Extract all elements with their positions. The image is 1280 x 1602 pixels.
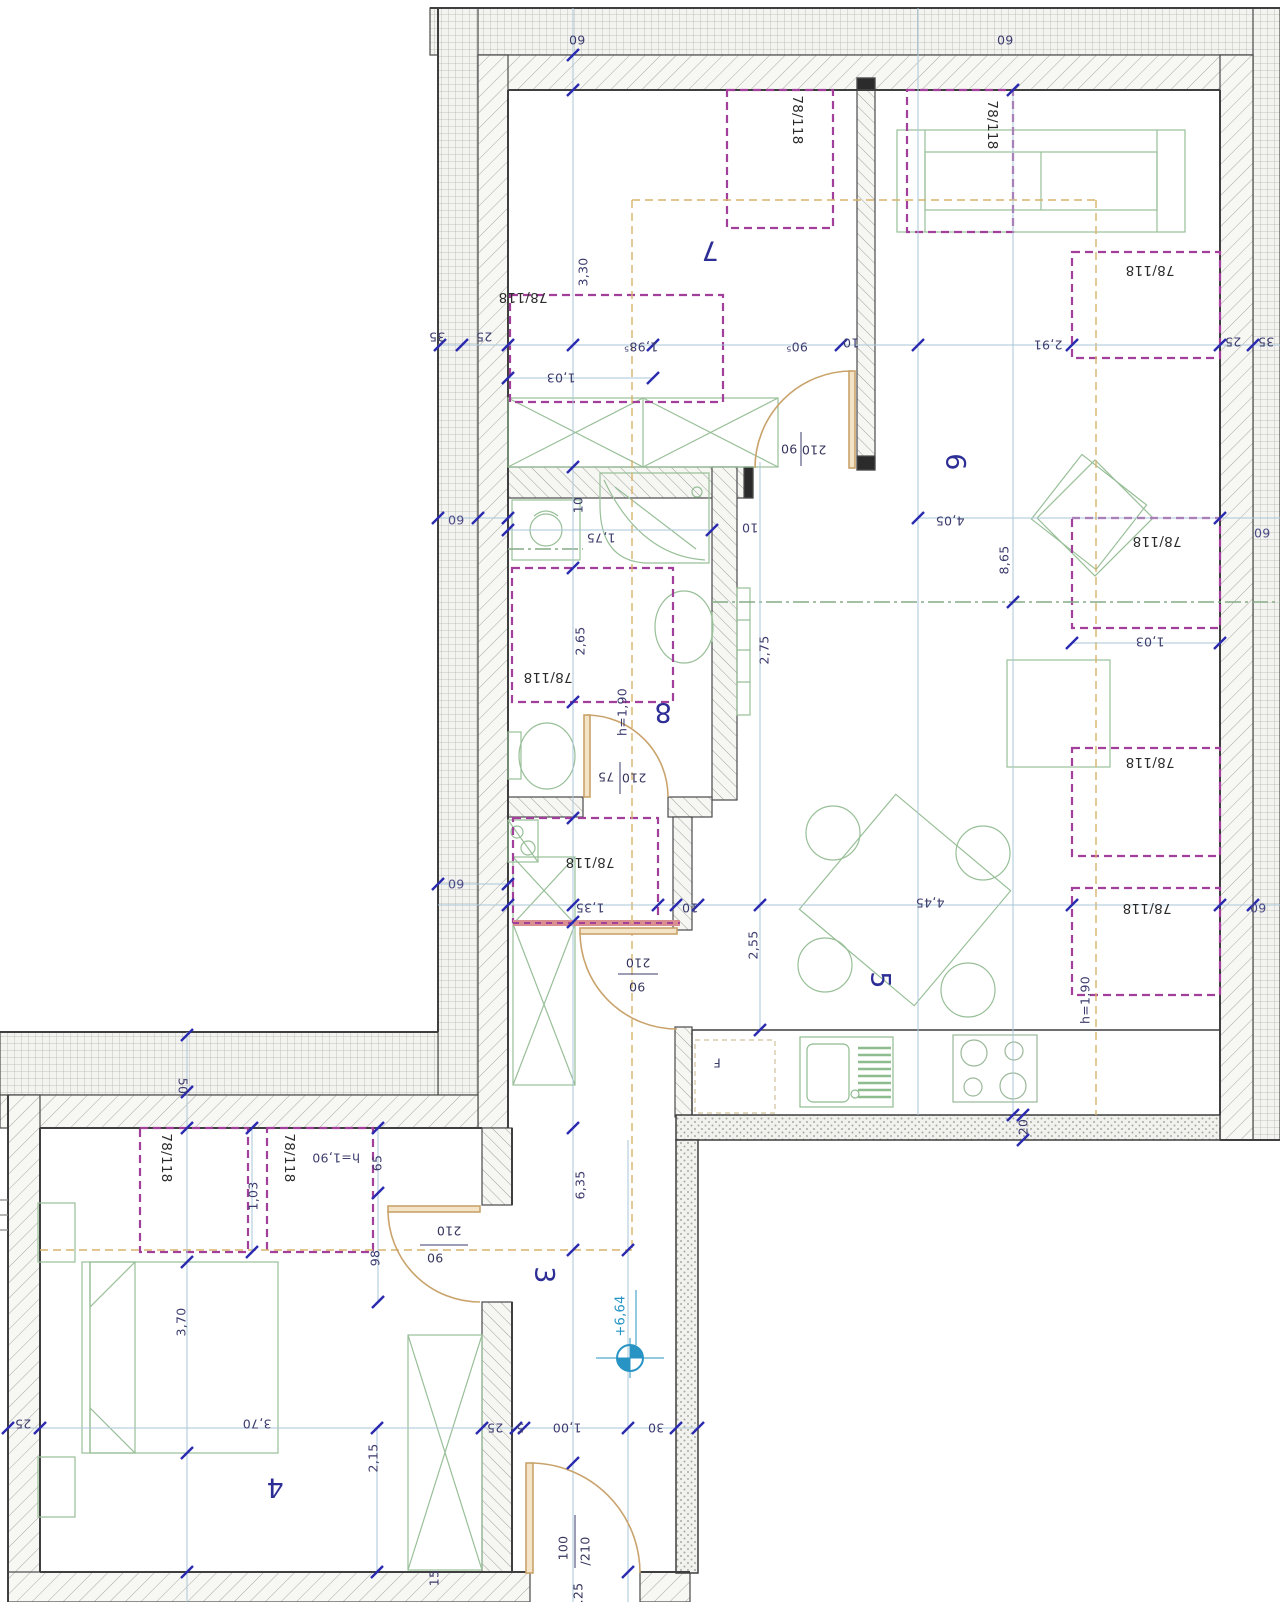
wall-masonry-left (478, 55, 508, 1128)
wardrobe-room4-icon (408, 1335, 482, 1570)
wall-kitchen-left (675, 1027, 692, 1117)
armchair-icon (1031, 454, 1153, 576)
roof-window-room5-upper (1072, 748, 1220, 856)
sill-layer (513, 920, 680, 926)
dimension-lines-layer (8, 8, 1280, 1602)
wardrobe-room7-icon (508, 398, 778, 467)
wardrobe-hall-icon (513, 857, 575, 1085)
wall-masonry-lowerwing-top (0, 1095, 478, 1128)
wall-end-block-3 (744, 467, 753, 498)
wall-kitchen-dotted (676, 1115, 1220, 1140)
wall-masonry-right (1220, 55, 1253, 1140)
toilet-icon (508, 723, 575, 789)
side-table-icon (1007, 660, 1110, 767)
wall-end-block-2 (857, 456, 875, 470)
wall-niche-right (673, 817, 692, 930)
door-hall-kitchen (580, 928, 677, 1029)
wall-end-block-1 (857, 78, 875, 90)
roof-window-room7-west (510, 295, 723, 402)
wall-room4-hall-upper (482, 1128, 512, 1205)
wall-bath-bottom-left (508, 797, 583, 817)
door-bath (584, 715, 668, 797)
wall-bath-bottom-right (668, 797, 712, 817)
floor-plan-canvas (0, 0, 1280, 1602)
sofa-icon (897, 130, 1185, 232)
wall-outer-lowerwing-top (0, 1032, 438, 1095)
elevation-marker-icon (596, 1338, 664, 1378)
wall-outer-left (438, 8, 478, 1095)
roof-window-niche (513, 818, 658, 922)
wall-masonry-lowerwing-left (8, 1095, 40, 1602)
walls-layer (0, 8, 1280, 1602)
door-entrance (526, 1463, 640, 1573)
roof-window-room4-right (267, 1128, 373, 1252)
dining-table-icon (798, 794, 1011, 1017)
roof-window-room6-ne (1072, 252, 1220, 358)
roof-window-bath (512, 568, 673, 702)
roof-window-room6-top (907, 90, 1013, 232)
cooktop-icon (953, 1035, 1037, 1102)
radiator-icon (737, 588, 750, 715)
wall-masonry-bottom-b (640, 1572, 690, 1602)
wall-outer-top (430, 8, 1280, 55)
left-edge-marks (0, 1200, 8, 1230)
roof-window-room4-left (140, 1128, 248, 1252)
wall-hall-dotted (676, 1140, 698, 1573)
wall-bath-right (712, 467, 737, 800)
roof-window-room6-e (1072, 518, 1220, 628)
roof-window-room7-right (727, 90, 833, 228)
floor-plan-page: 60603525253578/11878/11873,3078/1181,98⁵… (0, 0, 1280, 1602)
roof-window-room5-lower (1072, 888, 1220, 995)
fridge-icon (695, 1040, 775, 1113)
door-room6-room7 (755, 371, 855, 468)
door-room4 (388, 1206, 480, 1302)
washbasin-icon (655, 591, 713, 663)
wall-outer-right (1253, 8, 1280, 1140)
wall-room4-hall-lower (482, 1302, 512, 1572)
wall-masonry-bottom-a (8, 1572, 530, 1602)
wall-edges (0, 8, 1280, 1602)
wall-room6-room7 (857, 78, 875, 470)
kitchen-sink-icon (800, 1037, 893, 1107)
